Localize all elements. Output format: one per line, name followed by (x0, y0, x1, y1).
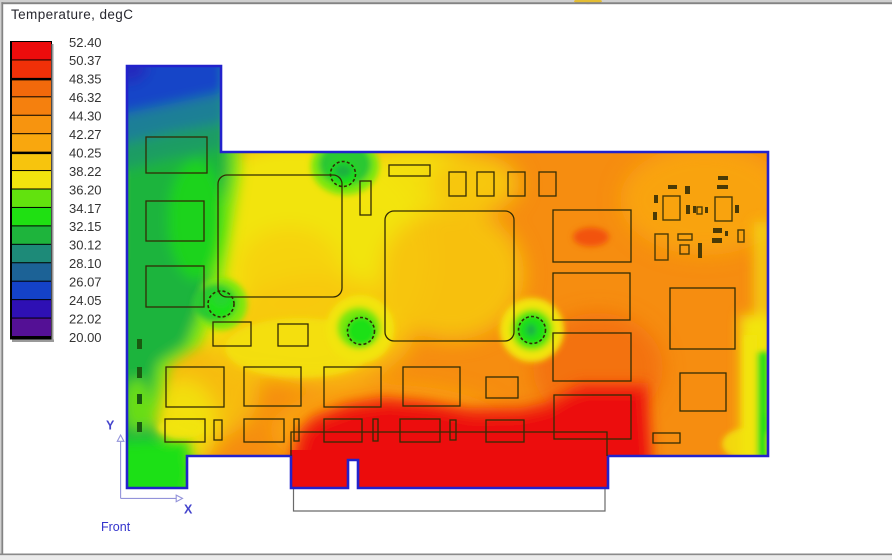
svg-text:Front: Front (101, 520, 131, 534)
svg-text:50.37: 50.37 (69, 53, 102, 68)
svg-text:22.02: 22.02 (69, 311, 102, 326)
svg-text:26.07: 26.07 (69, 275, 102, 290)
svg-text:32.15: 32.15 (69, 219, 102, 234)
svg-text:Temperature, degC: Temperature, degC (11, 7, 133, 22)
svg-text:36.20: 36.20 (69, 182, 102, 197)
svg-text:52.40: 52.40 (69, 35, 102, 50)
svg-text:40.25: 40.25 (69, 145, 102, 160)
svg-text:34.17: 34.17 (69, 201, 102, 216)
svg-text:28.10: 28.10 (69, 256, 102, 271)
svg-text:X: X (184, 503, 193, 517)
svg-text:20.00: 20.00 (69, 330, 102, 345)
svg-text:42.27: 42.27 (69, 127, 102, 142)
svg-text:46.32: 46.32 (69, 90, 102, 105)
svg-text:44.30: 44.30 (69, 109, 102, 124)
svg-text:48.35: 48.35 (69, 72, 102, 87)
svg-text:38.22: 38.22 (69, 164, 102, 179)
svg-text:Y: Y (106, 419, 115, 433)
svg-text:24.05: 24.05 (69, 293, 102, 308)
svg-text:30.12: 30.12 (69, 238, 102, 253)
